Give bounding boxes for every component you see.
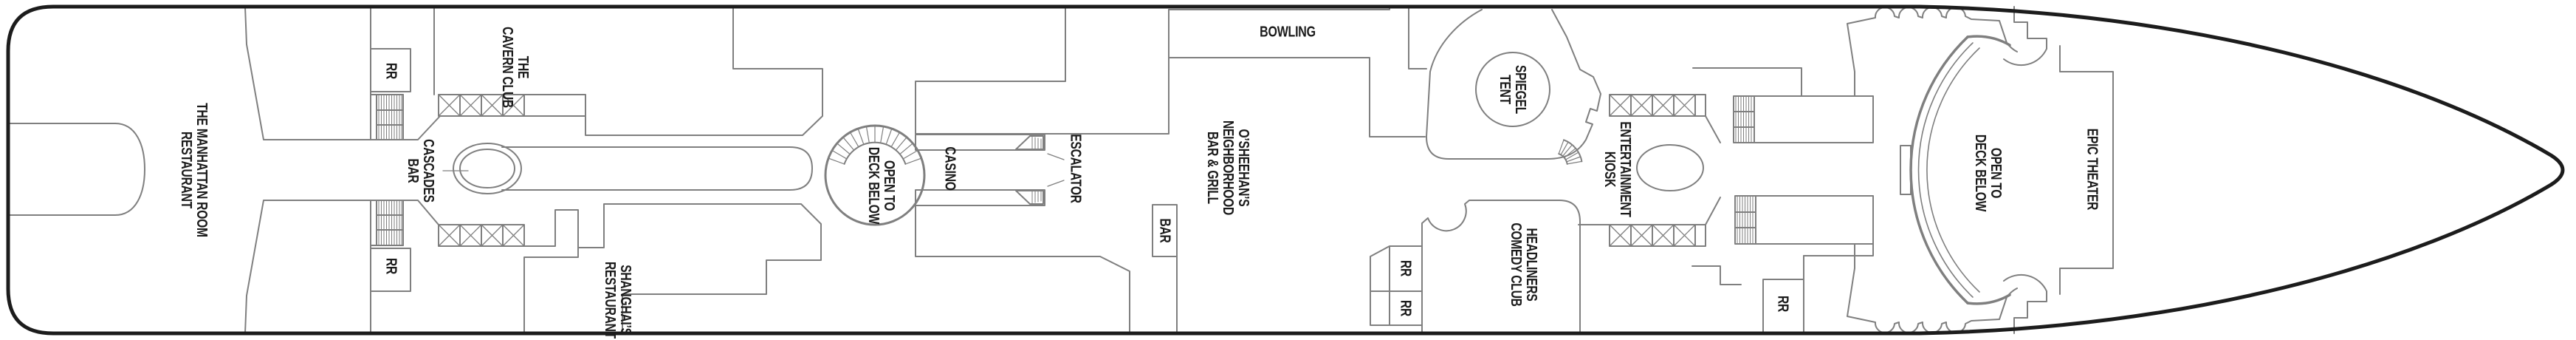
restroom-box-mid	[1370, 246, 1422, 325]
deck-plan: THE MANHATTAN ROOM RESTAURANT RR THE CAV…	[0, 0, 2576, 340]
label-spiegel-tent: SPIEGEL TENT	[1497, 65, 1528, 114]
label-entertainment-kiosk: ENTERTAINMENT KIOSK	[1601, 121, 1632, 217]
label-casino-opening: OPEN TO DECK BELOW	[865, 147, 896, 224]
stern-platform	[8, 123, 145, 215]
escalator-icon	[1016, 136, 1043, 149]
shanghais-restaurant-walls	[524, 204, 821, 333]
label-bar: BAR	[1157, 218, 1172, 242]
ship-hull-outline	[8, 7, 2563, 333]
kiosk-oval	[1637, 145, 1703, 191]
label-manhattan-room: THE MANHATTAN ROOM RESTAURANT	[178, 103, 209, 237]
label-cascades-bar: CASCADES BAR	[405, 139, 436, 203]
label-cavern-club: THE CAVERN CLUB	[499, 27, 530, 108]
stairwell-x-icon	[439, 225, 524, 246]
stairs-icon	[1735, 196, 1756, 244]
restroom-box-forward	[1763, 256, 1804, 333]
forward-rooms	[1692, 68, 1873, 333]
label-bowling: BOWLING	[1260, 25, 1316, 41]
label-rr-mid-top: RR	[1398, 260, 1413, 276]
label-rr-aft-bottom: RR	[383, 258, 399, 274]
label-headliners: HEADLINERS COMEDY CLUB	[1508, 222, 1539, 306]
escalator-icon	[1016, 191, 1043, 204]
label-theater-opening: OPEN TO DECK BELOW	[1972, 135, 2003, 211]
label-rr-aft-top: RR	[383, 63, 399, 79]
stairwell-x-icon	[1610, 225, 1706, 246]
label-escalator: ESCALATOR	[1068, 134, 1083, 203]
stairs-icon	[377, 95, 403, 140]
label-casino: CASINO	[942, 146, 958, 190]
deck-plan-drawing	[0, 0, 2576, 340]
label-epic-theater: EPIC THEATER	[2084, 129, 2100, 210]
stairs-icon	[1734, 96, 1754, 143]
escalator-banks	[916, 135, 1064, 205]
stage-wing	[2004, 7, 2047, 333]
label-rr-mid-bottom: RR	[1398, 300, 1413, 316]
leader-line	[1048, 154, 1064, 186]
stairwell-x-icon	[1610, 95, 1706, 116]
label-osheehans: O’SHEEHAN’S NEIGHBORHOOD BAR & GRILL	[1205, 120, 1251, 215]
stairs-icon	[377, 200, 403, 245]
label-shanghais: SHANGHAI’S RESTAURANT	[602, 262, 633, 339]
spiral-stairs-icon	[1559, 140, 1581, 164]
label-rr-forward: RR	[1775, 296, 1790, 312]
bar-counter-cascades	[443, 143, 812, 194]
